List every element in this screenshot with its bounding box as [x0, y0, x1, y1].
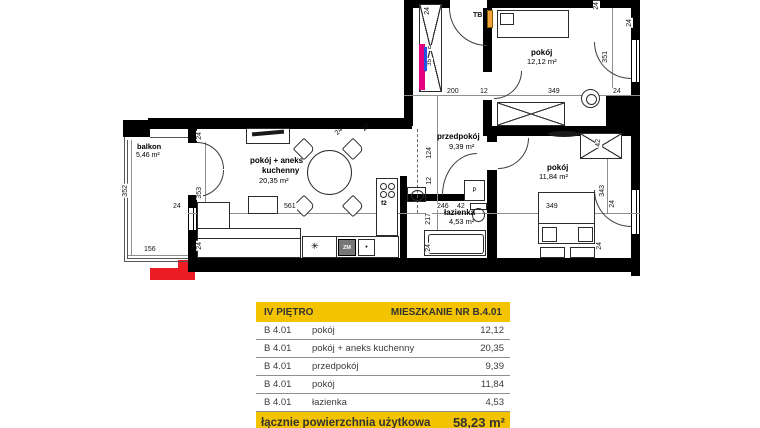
wardrobe-symbol	[497, 102, 565, 126]
shaft-label: 35	[427, 58, 433, 67]
dimension-line	[128, 255, 188, 256]
wall	[400, 176, 407, 258]
room-area: 12,12 m²	[527, 58, 557, 66]
dim-label: 42	[595, 138, 602, 148]
wall	[123, 120, 150, 137]
room-cell: pokój	[312, 379, 460, 390]
dim-label: 24	[612, 88, 622, 95]
area-table: IV PIĘTRO MIESZKANIE NR B.4.01 B 4.01 po…	[256, 302, 510, 428]
kitchen-counter-symbol: f2	[376, 178, 398, 236]
washbasin-symbol	[407, 187, 426, 202]
coffee-table-symbol	[248, 196, 278, 214]
stove-burner-icon	[388, 183, 395, 190]
wall	[404, 0, 413, 126]
balcony-rail	[150, 137, 188, 138]
floor-plan: ✳ ZM • f2 P 200 12 349	[0, 0, 760, 295]
wall	[606, 96, 631, 126]
door-arc	[197, 142, 224, 169]
dim-label: 24	[196, 241, 203, 251]
room-area: 9,39 m²	[449, 143, 474, 151]
dim-label: 352	[122, 184, 129, 198]
room-area: 20,35 m²	[259, 177, 289, 185]
dim-label: 24	[424, 6, 431, 16]
room-label: przedpokój	[437, 133, 480, 141]
room-label: łazienka	[444, 209, 475, 217]
table-header: IV PIĘTRO MIESZKANIE NR B.4.01	[256, 302, 510, 322]
sofa-symbol	[197, 228, 301, 258]
dim-label: 24	[593, 1, 600, 11]
total-area-value: 58,23 m²	[453, 415, 505, 428]
dim-label: 124	[426, 146, 433, 160]
table-row: B 4.01 pokój 11,84	[256, 376, 510, 394]
balcony-rail	[127, 258, 188, 259]
nightstand-symbol	[570, 247, 595, 258]
wall	[487, 0, 640, 8]
room-cell: pokój + aneks kuchenny	[312, 343, 460, 354]
room-label: kuchenny	[262, 167, 299, 175]
dimension-line	[131, 140, 132, 255]
dim-label: 200	[446, 88, 460, 95]
dim-label: 156	[143, 246, 157, 253]
plant-symbol	[581, 89, 600, 108]
dining-table-symbol	[307, 150, 352, 195]
shaft-label: d	[427, 45, 432, 51]
window-door-arc	[594, 42, 631, 79]
area-cell: 4,53	[460, 397, 510, 408]
bathtub-symbol	[424, 230, 486, 256]
tb-label: TB	[472, 12, 483, 19]
room-area: 4,53 m²	[449, 218, 474, 226]
counter-unit-symbol: •	[358, 239, 375, 256]
door-arc	[498, 138, 529, 169]
nightstand-symbol	[540, 247, 565, 258]
dim-label: 24	[172, 203, 182, 210]
stove-burner-icon	[380, 183, 387, 190]
wall	[188, 258, 640, 272]
bed-symbol	[497, 10, 569, 38]
wall	[487, 136, 497, 142]
room-area: 11,84 m²	[539, 173, 568, 181]
wall	[483, 100, 492, 126]
area-cell: 12,12	[460, 325, 510, 336]
dim-label: 24	[425, 243, 432, 253]
kitchen-counter-symbol: ✳ ZM •	[302, 236, 399, 258]
dim-label: 24	[609, 199, 616, 209]
fridge-icon: ✳	[311, 242, 319, 251]
room-label: balkon	[137, 143, 161, 151]
washing-machine-symbol: P	[464, 180, 485, 201]
room-area: 5,46 m²	[136, 152, 160, 159]
window	[188, 208, 197, 230]
table-row: B 4.01 łazienka 4,53	[256, 394, 510, 412]
area-cell: 11,84	[460, 379, 510, 390]
window	[631, 40, 640, 82]
balcony-rail	[127, 140, 128, 259]
unit-cell: B 4.01	[256, 361, 312, 372]
window	[631, 190, 640, 234]
area-cell: 9,39	[460, 361, 510, 372]
balcony-rail	[124, 137, 125, 262]
table-footer: łącznie powierzchnia użytkowa 58,23 m²	[256, 412, 510, 428]
room-label: pokój + aneks	[250, 157, 303, 165]
stove-burner-icon	[380, 191, 387, 198]
dim-label: 24	[196, 131, 203, 141]
tb-marker	[487, 10, 493, 28]
apartment-plan-page: ✳ ZM • f2 P 200 12 349	[0, 0, 760, 428]
dimension-line	[404, 95, 640, 96]
sink-symbol: ZM	[338, 239, 356, 256]
unit-cell: B 4.01	[256, 397, 312, 408]
dim-label: 12	[479, 88, 489, 95]
dim-label: 351	[602, 50, 609, 64]
unit-cell: B 4.01	[256, 325, 312, 336]
stove-burner-icon	[388, 191, 395, 198]
room-label: pokój	[547, 164, 568, 172]
tv-symbol	[548, 131, 580, 137]
dim-label: 217	[425, 212, 432, 226]
dim-label: 561	[283, 203, 297, 210]
dim-label: 349	[545, 203, 559, 210]
room-cell: przedpokój	[312, 361, 460, 372]
unit-cell: B 4.01	[256, 379, 312, 390]
table-row: B 4.01 pokój + aneks kuchenny 20,35	[256, 340, 510, 358]
dim-label: 343	[599, 184, 606, 198]
apartment-number-label: MIESZKANIE NR B.4.01	[391, 307, 502, 318]
dim-label: 24	[626, 18, 633, 28]
wall	[487, 170, 497, 262]
stove-label: f2	[381, 201, 387, 208]
pillow-symbol	[542, 227, 557, 242]
pillow-symbol	[500, 13, 514, 25]
dim-label: 24	[596, 241, 603, 251]
table-row: B 4.01 pokój 12,12	[256, 322, 510, 340]
room-cell: pokój	[312, 325, 460, 336]
dim-label: 353	[196, 186, 203, 200]
total-area-label: łącznie powierzchnia użytkowa	[261, 417, 430, 428]
dim-label: 349	[547, 88, 561, 95]
balcony-rail	[124, 261, 188, 262]
pillow-symbol	[578, 227, 593, 242]
unit-cell: B 4.01	[256, 343, 312, 354]
bed-symbol	[538, 192, 595, 244]
dim-label: 12	[426, 176, 433, 186]
area-cell: 20,35	[460, 343, 510, 354]
floor-label: IV PIĘTRO	[264, 307, 313, 318]
table-row: B 4.01 przedpokój 9,39	[256, 358, 510, 376]
room-cell: łazienka	[312, 397, 460, 408]
room-label: pokój	[531, 49, 552, 57]
